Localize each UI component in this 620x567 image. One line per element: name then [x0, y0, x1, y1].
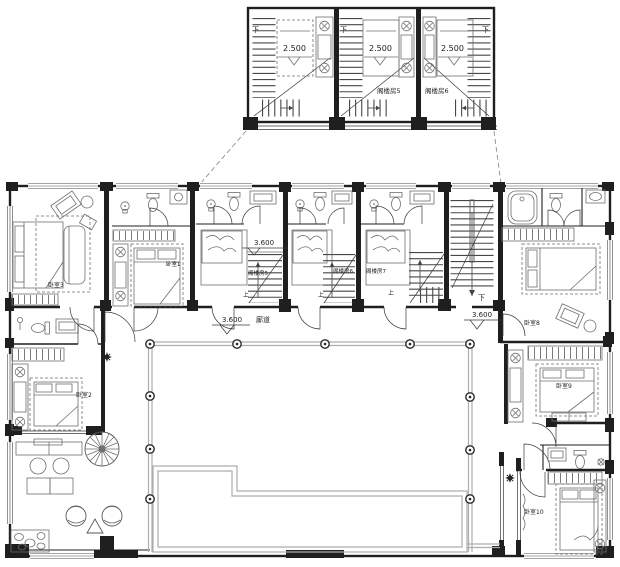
unit5-dim: 3.600 — [254, 239, 274, 247]
parasol — [85, 432, 119, 466]
corridor-dim-left: 3.600 — [222, 316, 242, 324]
bedroom1-label: 卧室1 — [166, 260, 181, 268]
detail1-stair-down: 下 — [252, 26, 259, 34]
bath-top-right — [508, 190, 605, 226]
detail2-bed-dim: 2.500 — [369, 44, 392, 53]
detail-room-2: 下 2.500 阁楼房5 — [340, 17, 414, 116]
partition-walls — [10, 188, 612, 556]
unit5-up: 上 — [243, 291, 249, 299]
unit5-label: 阁楼房5 — [248, 269, 269, 277]
detail3-room-label: 阁楼房6 — [425, 86, 449, 95]
detail2-room-label: 阁楼房5 — [377, 86, 401, 95]
bath-top-left — [121, 190, 187, 226]
main-stair-down: 下 — [478, 294, 485, 302]
courtyard — [146, 340, 500, 552]
armchair — [102, 506, 122, 526]
attic-unit5: 3.600 上 阁楼房5 — [201, 191, 288, 329]
bedroom9: 卧室9 — [508, 346, 602, 447]
bedroom10-label: 卧室10 — [524, 508, 544, 516]
bedroom3-label: 卧室3 — [48, 281, 64, 289]
bedroom8: 卧室8 — [502, 228, 600, 336]
corridor-name: 廊道 — [256, 315, 270, 324]
armchair — [66, 506, 86, 526]
bedroom1: 卧室1 — [113, 230, 183, 331]
terrace-edge — [153, 466, 467, 552]
callout-leader-lines — [200, 131, 501, 184]
main-plan: 卧室3 卧室1 — [5, 182, 614, 560]
attic-detail-box: 下 2.500 下 2.500 阁楼房5 — [243, 8, 497, 130]
bedroom9-label: 卧室9 — [556, 382, 572, 390]
unit7-up: 上 — [388, 289, 394, 297]
bedroom2: 卧室2 — [12, 348, 112, 430]
detail3-stair-down: 下 — [482, 26, 489, 34]
bath-bottom-right — [548, 448, 604, 469]
unit7-label: 阁楼房7 — [366, 267, 387, 275]
bedroom2-label: 卧室2 — [76, 391, 92, 399]
corridor-dim-right: 3.600 — [472, 311, 492, 319]
detail1-bed-dim: 2.500 — [283, 44, 306, 53]
unit6-up: 上 — [318, 291, 324, 299]
corridor-dimensions: 3.600 廊道 3.600 — [212, 311, 502, 334]
main-staircase: 下 — [452, 200, 493, 302]
bath-bedroom2 — [17, 312, 135, 344]
attic-unit7: 上 阁楼房7 — [366, 191, 444, 329]
detail-room-3: 下 2.500 阁楼房6 — [423, 17, 490, 116]
detail-room-1: 下 2.500 — [252, 17, 333, 116]
floor-plan-drawing: 下 2.500 下 2.500 阁楼房5 — [0, 0, 620, 567]
bedroom3: 卧室3 — [12, 191, 97, 331]
attic-unit6: 上 阁楼房6 — [292, 191, 356, 329]
bedroom8-label: 卧室8 — [524, 319, 540, 327]
unit6-label: 阁楼房6 — [333, 267, 354, 275]
corridor-right-doors — [524, 444, 550, 470]
detail2-stair-down: 下 — [340, 26, 347, 34]
floor-plan-svg: 下 2.500 下 2.500 阁楼房5 — [0, 0, 620, 567]
detail3-bed-dim: 2.500 — [441, 44, 464, 53]
lounge — [11, 432, 122, 552]
